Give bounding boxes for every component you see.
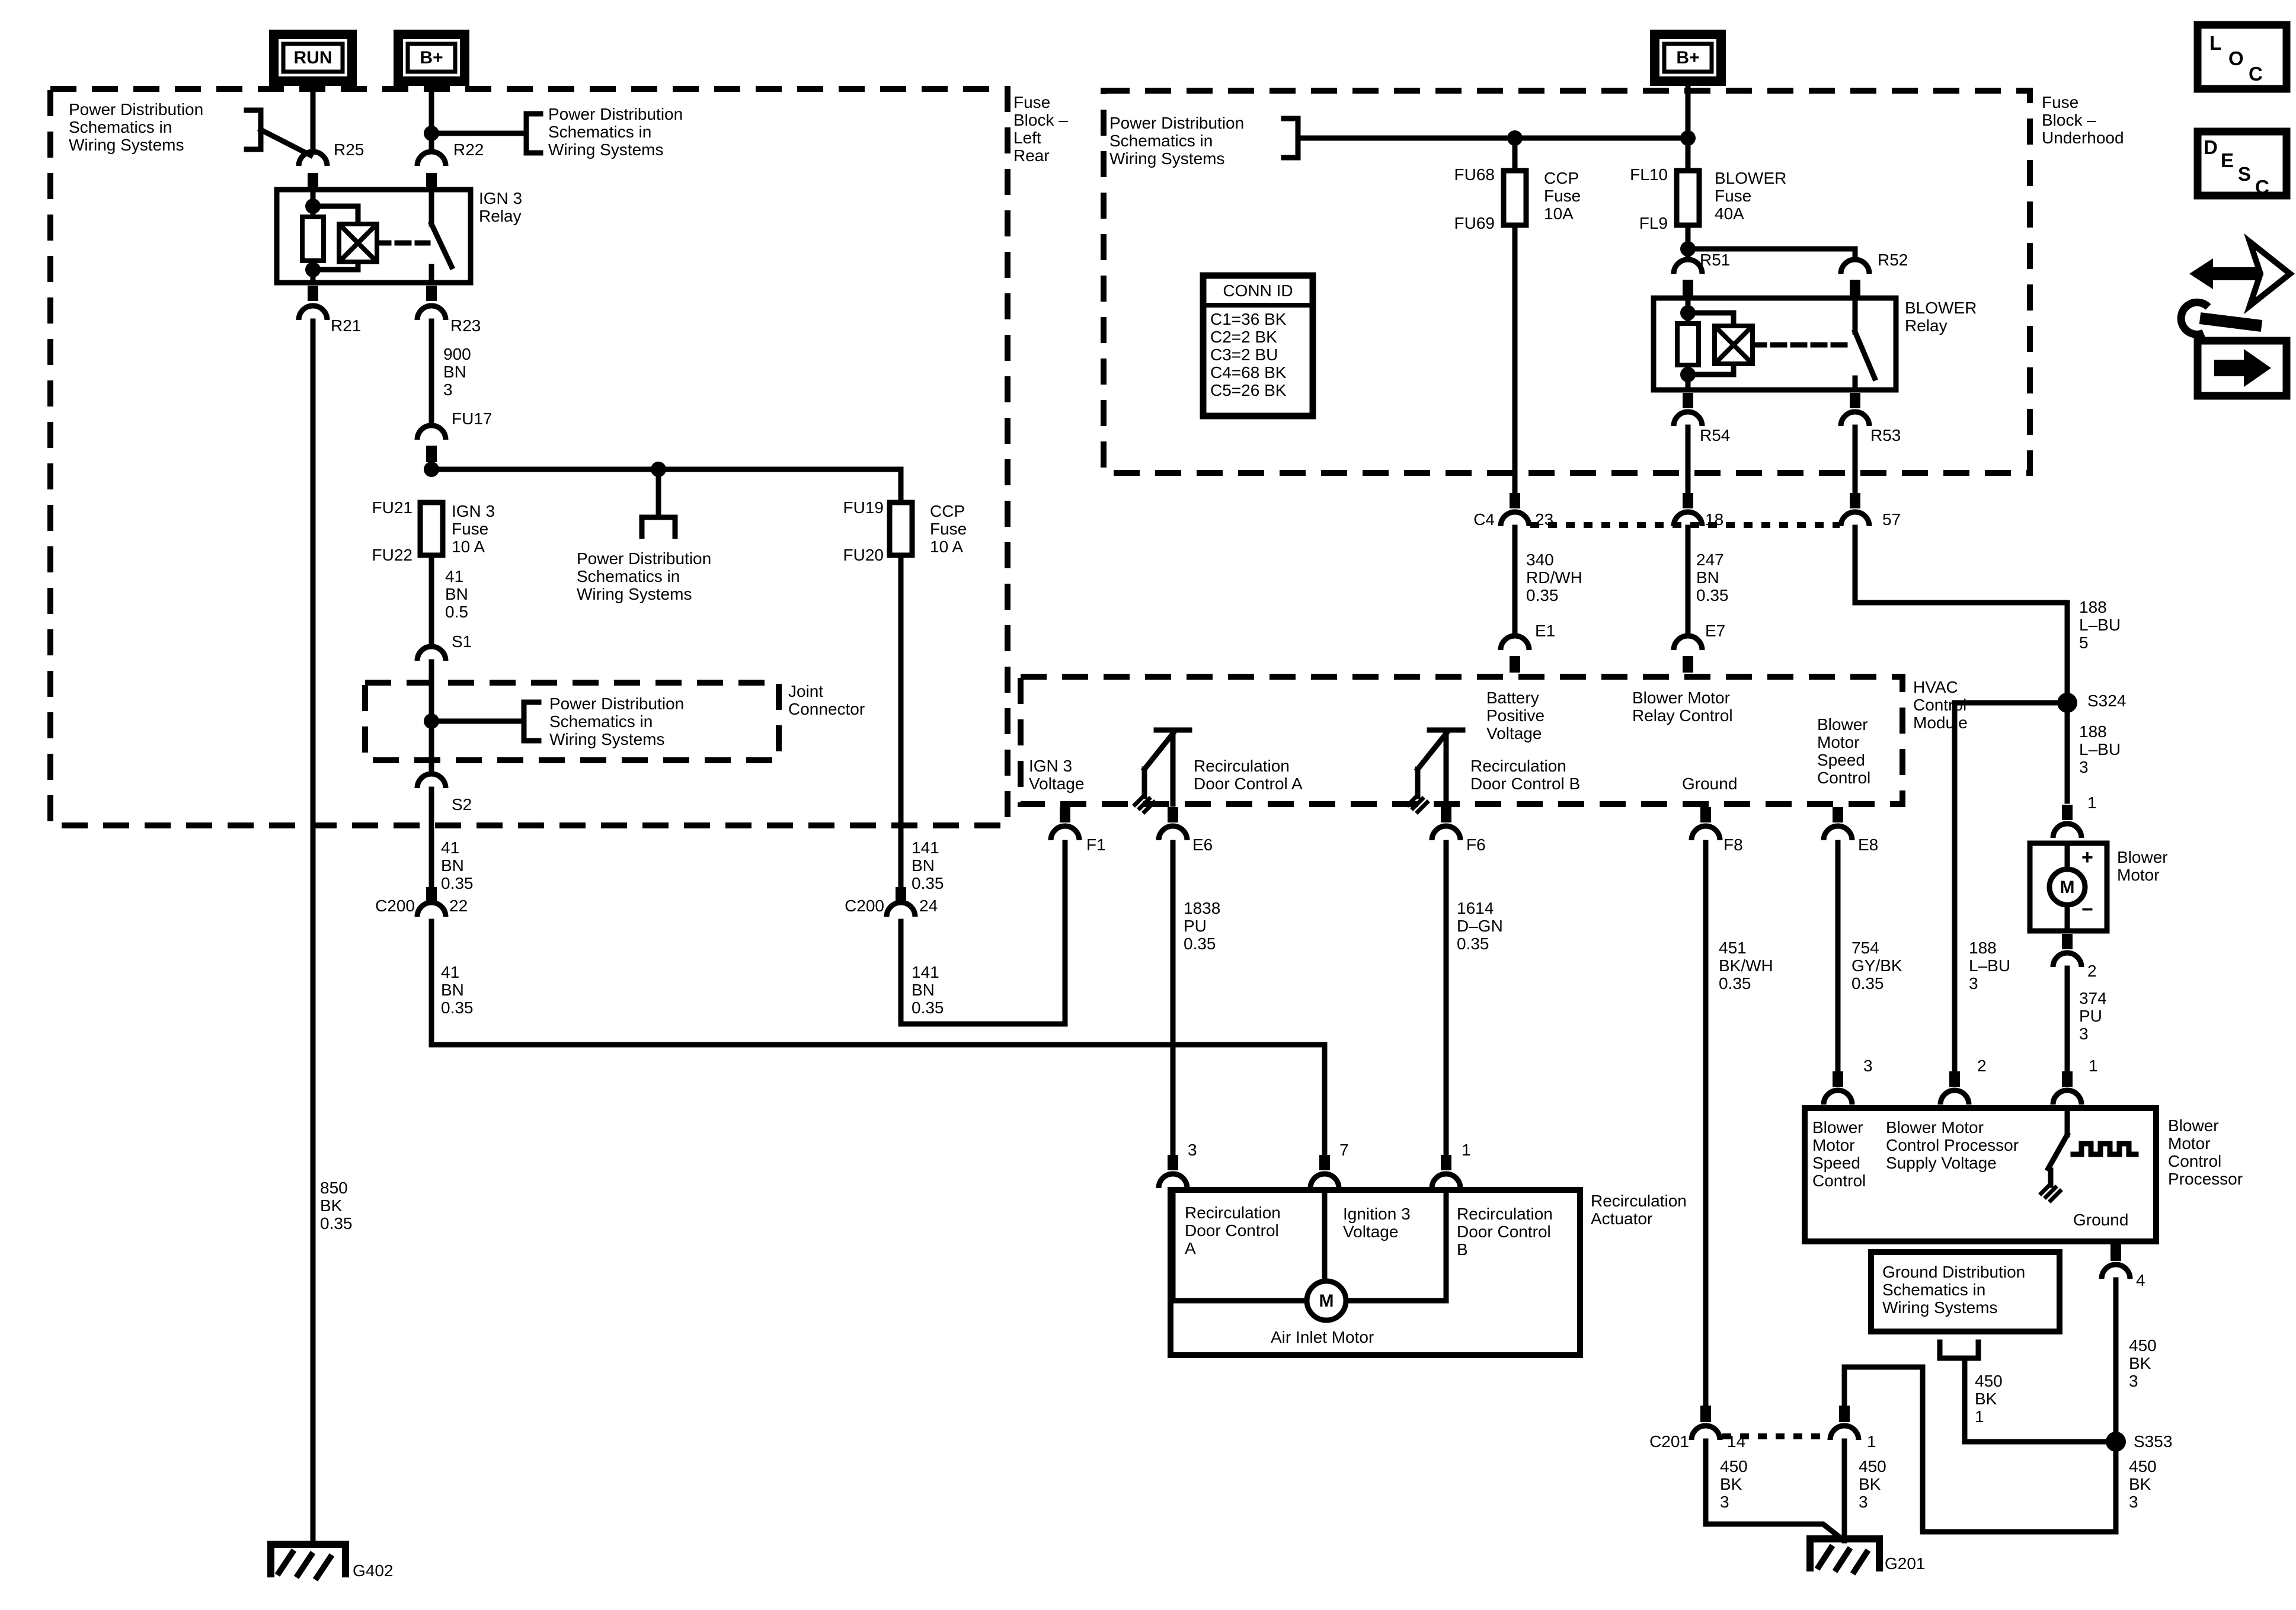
wire-1838-pu: 1838 PU 0.35 [1184, 900, 1220, 953]
joint-connector-label: Joint Connector [788, 683, 865, 718]
processor-ground: Ground [2073, 1211, 2128, 1229]
e8-pin-label: E8 [1858, 836, 1878, 854]
hvac-ground: Ground [1682, 775, 1737, 793]
actuator-pin-3: 3 [1188, 1141, 1197, 1159]
wire-450-bk-3-b: 450 BK 3 [2129, 1458, 2157, 1511]
schematic-linework [0, 0, 2296, 1610]
e1-pin-label: E1 [1535, 622, 1555, 640]
wire-450-bk-3-d: 450 BK 3 [1859, 1458, 1886, 1511]
blower-motor-minus: − [2081, 900, 2093, 920]
f8-pin-label: F8 [1723, 836, 1743, 854]
pin-23-label: 23 [1535, 511, 1553, 529]
bplus-right-terminal-label: B+ [1655, 49, 1721, 68]
hvac-module-label: HVAC Control Module [1913, 678, 1968, 732]
r51-pin-label: R51 [1700, 251, 1730, 269]
r25-pin-label: R25 [334, 141, 364, 159]
desc-icon-letter-d: D [2204, 137, 2218, 157]
desc-icon-letter-c: C [2255, 177, 2269, 197]
ign3-fuse-label: IGN 3 Fuse 10 A [452, 502, 495, 556]
blower-fuse-label: BLOWER Fuse 40A [1715, 169, 1786, 223]
fu17-pin-label: FU17 [452, 410, 492, 428]
s324-splice [2057, 693, 2077, 713]
fu19-pin-label: FU19 [843, 499, 884, 517]
g201-ground-symbol [1810, 1539, 1879, 1574]
blower-pin-1-top: 1 [2087, 794, 2097, 812]
blower-relay-resistor [1677, 324, 1699, 365]
s353-splice-label: S353 [2134, 1433, 2172, 1451]
bmcp-label: Blower Motor Control Processor [2168, 1117, 2243, 1188]
c4-connector-label: C4 [1473, 511, 1495, 529]
forward-arrow-icon[interactable] [2198, 341, 2287, 396]
power-distribution-ref-4: Power Distribution Schematics in Wiring … [549, 695, 684, 748]
s353-splice [2106, 1432, 2126, 1452]
actuator-ign3-voltage: Ignition 3 Voltage [1343, 1205, 1411, 1241]
run-terminal-label: RUN [274, 49, 352, 68]
e6-pin-label: E6 [1192, 836, 1213, 854]
wire-754-gybk: 754 GY/BK 0.35 [1851, 939, 1902, 993]
blower-motor-m: M [2049, 878, 2085, 897]
g201-ground-label: G201 [1885, 1555, 1926, 1573]
hvac-ign3-voltage: IGN 3 Voltage [1029, 757, 1084, 793]
blower-relay-label: BLOWER Relay [1905, 299, 1977, 335]
ccp-fuse-body [890, 502, 912, 555]
hvac-rdc-b: Recirculation Door Control B [1470, 757, 1580, 793]
ccp-fuse2-body [1504, 171, 1526, 225]
pin-22-label: 22 [449, 897, 468, 915]
r53-pin-label: R53 [1870, 427, 1901, 444]
power-distribution-ref-2: Power Distribution Schematics in Wiring … [548, 105, 683, 159]
wire-188-lbu-5: 188 L–BU 5 [2079, 598, 2121, 652]
f6-pin-label: F6 [1466, 836, 1486, 854]
hvac-rdc-a: Recirculation Door Control A [1194, 757, 1303, 793]
r54-pin-label: R54 [1700, 427, 1730, 444]
s324-splice-label: S324 [2087, 692, 2126, 710]
ccp-fuse-label: CCP Fuse 10 A [930, 502, 967, 556]
wire-374-pu: 374 PU 3 [2079, 990, 2107, 1043]
fl10-pin-label: FL10 [1630, 166, 1668, 184]
loc-icon-letter-l: L [2209, 33, 2221, 53]
wire-451-bkwh: 451 BK/WH 0.35 [1719, 939, 1773, 993]
blower-motor-label: Blower Motor [2117, 849, 2168, 884]
fl9-pin-label: FL9 [1639, 215, 1668, 232]
fu20-pin-label: FU20 [843, 546, 884, 564]
ign3-fuse-body [420, 502, 443, 555]
pin-14-label: 14 [1727, 1433, 1745, 1451]
wrench-arrows-icon[interactable] [2181, 242, 2290, 334]
wire-41-bn-035-b: 41 BN 0.35 [441, 964, 474, 1017]
fu68-pin-label: FU68 [1454, 166, 1495, 184]
desc-icon-letter-s: S [2238, 164, 2251, 184]
air-inlet-motor-label: Air Inlet Motor [1271, 1329, 1374, 1346]
wire-450-bk-1: 450 BK 1 [1975, 1372, 2003, 1426]
power-distribution-ref-1: Power Distribution Schematics in Wiring … [69, 101, 203, 154]
wire-188-lbu-3-a: 188 L–BU 3 [2079, 723, 2121, 776]
air-inlet-motor-m: M [1309, 1292, 1344, 1311]
power-distribution-ref-5: Power Distribution Schematics in Wiring … [1109, 114, 1244, 168]
fuse-block-left-rear-label: Fuse Block – Left Rear [1013, 94, 1068, 165]
pin-24-label: 24 [919, 897, 938, 915]
power-distribution-ref-3: Power Distribution Schematics in Wiring … [577, 550, 711, 603]
wire-450-bk-3-a: 450 BK 3 [2129, 1337, 2157, 1390]
r52-pin-label: R52 [1878, 251, 1908, 269]
r21-pin-label: R21 [331, 317, 361, 335]
actuator-pin-7: 7 [1339, 1141, 1349, 1159]
s2-splice-label: S2 [452, 796, 472, 814]
g402-ground-label: G402 [353, 1562, 394, 1580]
ccp-fuse2-label: CCP Fuse 10A [1544, 169, 1581, 223]
bplus-left-terminal-label: B+ [398, 49, 465, 68]
r23-pin-label: R23 [450, 317, 481, 335]
actuator-pin-1: 1 [1462, 1141, 1471, 1159]
processor-supply-voltage: Blower Motor Control Processor Supply Vo… [1886, 1119, 2019, 1172]
wire-850-bk-035: 850 BK 0.35 [320, 1179, 353, 1233]
pin-57-label: 57 [1882, 511, 1901, 529]
c200-label-b: C200 [845, 897, 884, 915]
processor-speed-control: Blower Motor Speed Control [1812, 1119, 1866, 1190]
actuator-rdc-b: Recirculation Door Control B [1457, 1205, 1553, 1259]
processor-pin-4: 4 [2136, 1272, 2145, 1289]
hvac-speed-control: Blower Motor Speed Control [1817, 716, 1870, 787]
wire-188-lbu-3-b: 188 L–BU 3 [1969, 939, 2010, 993]
wire-41-bn-035-a: 41 BN 0.35 [441, 839, 474, 892]
s1-splice-label: S1 [452, 633, 472, 651]
conn-id-rows: C1=36 BK C2=2 BK C3=2 BU C4=68 BK C5=26 … [1210, 311, 1286, 399]
loc-icon-letter-o: O [2228, 49, 2244, 68]
wire-900-bn-3: 900 BN 3 [443, 345, 471, 399]
hvac-battery-voltage: Battery Positive Voltage [1486, 689, 1544, 742]
fu21-pin-label: FU21 [372, 499, 412, 517]
processor-pin-2: 2 [1977, 1057, 1987, 1075]
conn-id-title: CONN ID [1203, 282, 1313, 300]
wiring-diagram-page: RUN B+ B+ Power Distribution Schematics … [0, 0, 2296, 1610]
pin-18-label: 18 [1705, 511, 1723, 529]
e7-pin-label: E7 [1705, 622, 1725, 640]
ign3-relay-resistor [302, 217, 324, 261]
loc-icon-letter-c: C [2249, 64, 2263, 84]
blower-relay-coil [1715, 326, 1753, 364]
ign3-relay-coil [339, 224, 377, 262]
processor-pin-3: 3 [1863, 1057, 1873, 1075]
r22-pin-label: R22 [453, 141, 484, 159]
blower-fuse-body [1677, 171, 1699, 225]
hvac-relay-control: Blower Motor Relay Control [1632, 689, 1733, 725]
ign3-relay-label: IGN 3 Relay [479, 190, 522, 225]
wire-141-bn-035-b: 141 BN 0.35 [912, 964, 944, 1017]
f1-pin-label: F1 [1086, 836, 1106, 854]
wire-1614-dgn: 1614 D–GN 0.35 [1457, 900, 1503, 953]
fu22-pin-label: FU22 [372, 546, 412, 564]
blower-pin-2-bottom: 2 [2087, 962, 2097, 980]
blower-motor-plus: + [2081, 847, 2093, 868]
fu69-pin-label: FU69 [1454, 215, 1495, 232]
wire-340-rdwh: 340 RD/WH 0.35 [1526, 551, 1582, 604]
recirculation-actuator-label: Recirculation Actuator [1591, 1192, 1687, 1228]
wire-141-bn-035-a: 141 BN 0.35 [912, 839, 944, 892]
wire-41-bn-05: 41 BN 0.5 [445, 568, 468, 621]
actuator-rdc-a: Recirculation Door Control A [1185, 1204, 1281, 1257]
c200-label-a: C200 [375, 897, 415, 915]
desc-icon-letter-e: E [2221, 151, 2234, 170]
c201-pin-1-label: 1 [1867, 1433, 1876, 1451]
processor-pin-1: 1 [2089, 1057, 2098, 1075]
hvac-control-module-box [1021, 677, 1902, 804]
wire-450-bk-3-c: 450 BK 3 [1720, 1458, 1748, 1511]
fuse-block-underhood-label: Fuse Block – Underhood [2042, 94, 2124, 147]
wire-247-bn: 247 BN 0.35 [1696, 551, 1729, 604]
c201-connector-label: C201 [1649, 1433, 1689, 1451]
g402-ground-symbol [271, 1544, 346, 1580]
ground-distribution-ref: Ground Distribution Schematics in Wiring… [1882, 1263, 2025, 1317]
